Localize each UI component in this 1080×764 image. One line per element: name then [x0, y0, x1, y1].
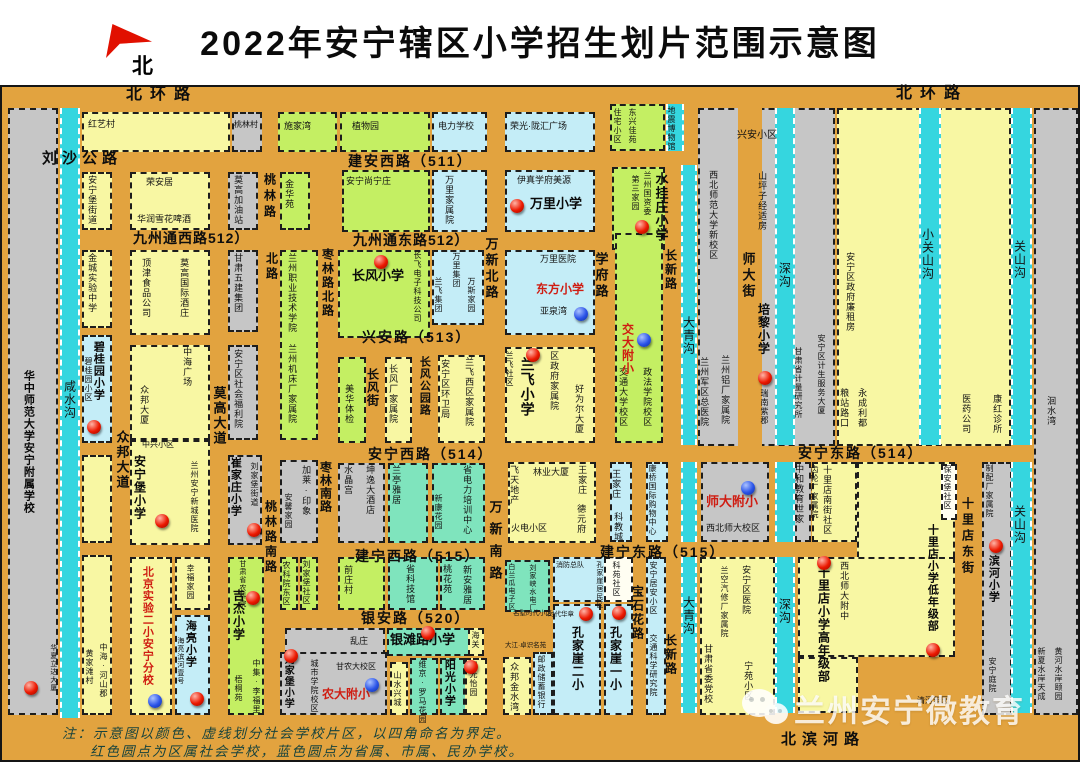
area-label: 黄河水岸颐园 — [1053, 647, 1062, 701]
red-school-dot — [190, 692, 204, 706]
area-label: 制配厂家属院 — [984, 464, 993, 518]
map-canvas: 2022年安宁辖区小学招生划片范围示意图 北 北环路北环路刘沙公路建安西路（51… — [0, 0, 1080, 764]
area-label: 粮站路口 — [839, 388, 849, 428]
area-label: 兰州国资委 — [642, 171, 651, 216]
red-school-dot — [87, 420, 101, 434]
area-label: 甘肃省委党校 — [703, 644, 713, 704]
school-label: 华中师范大学安宁附属学校 — [22, 370, 34, 514]
area-label: 乱庄 — [350, 636, 368, 646]
school-label: 兰飞小学 — [518, 357, 534, 417]
area-label: 德元府 — [576, 504, 586, 534]
area-label: 万斯家园 — [466, 277, 475, 313]
area-label: 安宁区环卫局 — [440, 359, 450, 419]
red-school-dot — [246, 591, 260, 605]
school-label: 十里店小学高年级部 — [816, 566, 829, 683]
watermark: 兰州安宁微教育 — [742, 686, 1025, 731]
road-label: 学府路 — [593, 252, 608, 300]
area-label: 电力学校 — [438, 121, 474, 131]
area-label: 桃花苑 — [442, 564, 452, 594]
area-label: 住宅小区 — [612, 108, 621, 144]
school-label: 农大附小 — [322, 688, 370, 701]
area-label: 顶津食品公司 — [141, 258, 151, 318]
area-label: 兰飞西区家属院 — [464, 357, 474, 427]
area-label: 消防总队 — [556, 562, 584, 570]
red-school-dot — [284, 649, 298, 663]
area-label: 洄水湾 — [1046, 396, 1056, 426]
map-block — [280, 250, 318, 440]
area-label: 瑞南紫郡 — [759, 389, 768, 425]
area-label: 碧桂园小区 — [83, 357, 92, 402]
waterway — [681, 165, 697, 445]
blue-school-dot — [741, 481, 755, 495]
road-label: 长风街 — [365, 368, 378, 407]
area-label: 西北师大校区 — [706, 523, 760, 533]
waterway-label: 关山沟 — [1012, 240, 1025, 279]
legend-note-line1: 注：示意图以颜色、虚线划分社会学校片区，以四角命名为界定。 — [62, 722, 512, 742]
red-school-dot — [612, 606, 626, 620]
waterway-label: 地震博物馆 — [666, 106, 675, 151]
area-label: 海关 — [470, 631, 479, 649]
map-block — [82, 455, 112, 543]
waterway — [681, 462, 697, 542]
area-label: 安宁区医院 — [741, 565, 751, 615]
waterway-label: 深沟 — [777, 598, 790, 624]
area-label: 长风厂家属院 — [388, 364, 398, 424]
road-label: 刘沙公路 — [42, 151, 122, 168]
area-label: 科苑社区 — [611, 561, 620, 597]
road-label: 九州通东路512） — [353, 233, 469, 249]
school-label: 安宁堡小学 — [132, 455, 145, 520]
page-title: 2022年安宁辖区小学招生划片范围示意图 — [0, 16, 1080, 65]
area-label: 时代华章 — [548, 611, 574, 618]
school-label: 师大附小 — [706, 496, 758, 511]
area-label: 邮政储蓄银行 — [536, 655, 545, 709]
red-school-dot — [247, 523, 261, 537]
area-label: 荣安居 — [146, 177, 173, 187]
area-label: 东兴佳苑 — [627, 108, 636, 144]
area-label: 幸福家园 — [185, 564, 194, 600]
area-label: 兰州职业技术学院 — [287, 253, 297, 333]
blue-school-dot — [148, 694, 162, 708]
area-label: 科教城 — [613, 512, 623, 542]
school-label: 长风小学 — [352, 270, 404, 285]
blue-school-dot — [365, 678, 379, 692]
area-label: 加莱·印象 — [301, 465, 311, 516]
area-label: 西北师大附中 — [839, 561, 849, 621]
road-label: 九州通西路512） — [133, 231, 249, 247]
area-label: 交通科学研究院 — [648, 634, 657, 697]
area-label: 兰飞社区 — [504, 351, 513, 387]
area-label: 刘家堡社区 — [301, 560, 310, 605]
area-label: 安馨家园 — [283, 493, 292, 529]
area-label: 植物园 — [352, 121, 379, 131]
red-school-dot — [526, 348, 540, 362]
legend-note-line2: 红色圆点为区属社会学校，蓝色圆点为省属、市属、民办学校。 — [90, 740, 524, 760]
road-label: 十里店东街 — [960, 497, 973, 577]
area-label: 永成利都 — [857, 388, 867, 428]
area-label: 万里家属院 — [444, 175, 454, 225]
area-label: 甘肃五建集团 — [233, 253, 243, 313]
waterway — [775, 462, 795, 542]
waterway-label: 深沟 — [777, 262, 790, 288]
area-label: 万里医院 — [540, 254, 576, 264]
road-label: 师大街 — [740, 252, 755, 300]
area-label: 刘家峡水电厂 — [528, 564, 536, 612]
area-label: 众邦大厦 — [139, 385, 149, 425]
area-label: 安宁堡街道 — [87, 175, 97, 225]
waterway-label: 咸水沟 — [62, 380, 75, 419]
road-label: 安宁东路（514） — [798, 446, 923, 462]
area-label: 城市学院校区 — [309, 659, 318, 713]
north-label: 北 — [132, 50, 153, 80]
school-label: 吉杰小学 — [231, 589, 244, 641]
area-label: 新安雅居 — [462, 565, 472, 605]
area-label: 第三家园 — [630, 175, 639, 211]
red-school-dot — [579, 607, 593, 621]
area-label: 白兰瓜电子区 — [507, 563, 515, 611]
area-label: 林业大厦 — [533, 467, 569, 477]
area-label: 华夏立达大厦 — [49, 644, 57, 692]
area-label: 兴安小区 — [737, 130, 777, 141]
area-label: 新夏水岸天成 — [1036, 647, 1045, 701]
area-label: 山坪子经适房 — [757, 171, 767, 231]
area-label: 兰亭雅居 — [391, 465, 401, 505]
red-school-dot — [926, 643, 940, 657]
red-school-dot — [817, 556, 831, 570]
road-label: 北环路 — [126, 86, 198, 104]
area-label: 王家庄 — [577, 465, 587, 495]
waterway-label: 大青沟 — [681, 596, 694, 635]
road-label: 枣林南路 — [318, 461, 331, 513]
school-label: 碧桂园小学 — [92, 341, 104, 401]
area-label: 安宁尚宁庄 — [346, 176, 391, 186]
area-label: 海亮滨河壹号 — [176, 637, 184, 685]
area-label: 甘农大校区 — [336, 663, 376, 672]
area-label: 政法学院校区 — [642, 367, 652, 427]
waterway-label: 小关山沟 — [920, 228, 933, 280]
area-label: 甘肃省计量研究所 — [793, 347, 802, 419]
area-label: 省科技馆 — [405, 564, 415, 604]
area-label: 农科院东区 — [281, 561, 290, 606]
area-label: 华润雪花啤酒 — [137, 214, 191, 224]
area-label: 莫高加油站 — [233, 175, 243, 225]
area-label: 刘家堡街道 — [249, 462, 258, 507]
area-label: 安宁区政府廉租房 — [845, 252, 855, 332]
area-label: 名墅时代小区 — [513, 610, 552, 617]
area-label: 省电力培训中心 — [462, 465, 472, 535]
area-label: 好为尔大厦 — [574, 384, 584, 434]
map-block — [340, 112, 430, 152]
area-label: 伊真学府美源 — [517, 175, 571, 185]
school-label: 阳光小学 — [443, 659, 455, 707]
road-label: 万新南路 — [487, 500, 502, 588]
area-label: 水晶宫 — [343, 465, 353, 495]
road-label: 枣林路北路 — [320, 248, 333, 318]
area-label: 康桥国际购物中心 — [647, 464, 656, 536]
map-block — [505, 112, 595, 152]
area-label: 中兴小区 — [142, 441, 174, 450]
road-label: 建宁西路（515） — [355, 549, 480, 565]
school-label: 交大附小 — [620, 323, 633, 375]
area-label: 新康花园 — [433, 494, 442, 530]
map-block — [432, 170, 487, 232]
road-label: 长风公园路 — [418, 356, 430, 416]
area-label: 兰州铝厂家属院 — [720, 355, 730, 425]
area-label: 施家湾 — [284, 121, 311, 131]
area-label: 中和教育世家 — [794, 464, 804, 524]
area-label: 兰飞集团 — [433, 277, 442, 313]
watermark-text: 兰州安宁微教育 — [794, 686, 1025, 731]
red-school-dot — [510, 199, 524, 213]
road-label: 桃林路南路 — [263, 500, 276, 575]
wechat-icon — [742, 689, 788, 729]
area-label: 飞天地产 — [509, 465, 519, 505]
road-label: 北环路 — [896, 85, 968, 103]
school-label: 东方小学 — [536, 283, 584, 296]
area-label: 安宁区社会福利院 — [233, 349, 243, 429]
area-label: 大江·卓识名苑 — [505, 642, 546, 649]
area-label: 荣光·陇汇广场 — [510, 121, 567, 131]
area-label: 医药公司 — [961, 394, 971, 434]
school-label: 崔家庄小学 — [229, 457, 241, 517]
area-label: 金华苑 — [284, 179, 294, 209]
map-block — [278, 112, 337, 152]
area-label: 保安堡社区 — [942, 465, 951, 510]
area-label: 火电小区 — [511, 523, 547, 533]
area-label: 齿轮厂家属院 — [809, 465, 818, 519]
area-label: 交通大学校区 — [618, 367, 628, 427]
waterway — [681, 557, 697, 713]
area-label: 万里集团 — [451, 252, 460, 288]
area-label: 中集·李福里 — [251, 659, 260, 714]
road-label: 众邦大道 — [114, 430, 129, 490]
red-school-dot — [421, 626, 435, 640]
road-label: 长新路 — [663, 634, 676, 676]
school-label: 孔家崖一小 — [608, 626, 621, 691]
area-label: 长飞电子科技公司 — [412, 251, 421, 323]
area-label: 山水兴城 — [392, 671, 401, 707]
area-label: 坤逸大酒店 — [365, 465, 375, 515]
red-school-dot — [374, 255, 388, 269]
waterway-label: 关山沟 — [1012, 505, 1025, 544]
road-label: 北滨河路 — [781, 732, 865, 749]
school-label: 培黎小学 — [756, 303, 769, 355]
road-label: 北路 — [264, 252, 277, 282]
area-label: 兰空汽修厂家属院 — [719, 566, 728, 638]
area-label: 区政府家属院 — [549, 351, 559, 411]
waterway — [1011, 462, 1032, 713]
road-label: 银安路（520） — [361, 611, 470, 627]
area-label: 金城实验中学 — [87, 253, 97, 313]
area-label: 康红诊所 — [992, 394, 1002, 434]
road-label: 长新路 — [663, 249, 676, 291]
area-label: 黄家滩村 — [84, 649, 93, 685]
school-label: 海亮小学 — [184, 620, 196, 668]
road-label: 宝石花路 — [630, 585, 643, 641]
area-label: 中海·河山郡 — [98, 643, 107, 698]
blue-school-dot — [637, 333, 651, 347]
map-block — [432, 112, 487, 152]
area-label: 安宁区计生服务大厦 — [816, 334, 825, 415]
area-label: 亚泉湾 — [540, 306, 567, 316]
area-label: 兰州安宁新城医院 — [189, 461, 198, 533]
area-label: 桃林村 — [234, 121, 258, 130]
road-label: 万新北路 — [483, 237, 498, 301]
map-block — [82, 112, 230, 152]
area-label: 美华体检 — [344, 384, 354, 424]
road-label: 桃林路 — [262, 173, 275, 221]
area-label: 莫高国际酒庄 — [179, 258, 189, 318]
map-block — [232, 112, 262, 152]
area-label: 兰州机床厂家属院 — [287, 344, 297, 424]
red-school-dot — [989, 539, 1003, 553]
area-label: 十里店南街社区 — [822, 465, 832, 535]
area-label: 安宁居安小区 — [648, 561, 657, 615]
red-school-dot — [635, 220, 649, 234]
red-school-dot — [155, 514, 169, 528]
road-label: 莫高大道 — [211, 386, 226, 446]
school-label: 水挂庄小学 — [652, 172, 667, 242]
area-label: 前庄村 — [343, 565, 353, 595]
area-label: 兰州军区总医院 — [699, 357, 709, 427]
road-label: 建宁东路（515） — [600, 545, 725, 561]
school-label: 滨河小学 — [987, 555, 999, 603]
area-label: 中海广场 — [182, 347, 192, 387]
school-label: 孔家崖二小 — [570, 626, 583, 691]
area-label: 王家庄 — [611, 469, 621, 499]
area-label: 红艺村 — [88, 119, 115, 129]
school-label: 万里小学 — [530, 198, 582, 213]
road-label: 安宁西路（514） — [368, 447, 493, 463]
red-school-dot — [464, 660, 478, 674]
road-label: 兴安路（513） — [362, 330, 471, 346]
area-label: 众邦金水湾 — [509, 662, 519, 712]
red-school-dot — [758, 371, 772, 385]
school-label: 北京实验二小安宁分校 — [141, 566, 153, 686]
school-label: 十里店小学低年级部 — [926, 524, 938, 632]
blue-school-dot — [574, 307, 588, 321]
road-label: 建安西路（511） — [348, 154, 473, 170]
area-label: 维京·罗马花园 — [417, 660, 426, 724]
red-school-dot — [24, 681, 38, 695]
area-label: 孔家崖居民区 — [595, 561, 603, 609]
area-label: 西北师范大学新校区 — [708, 170, 718, 260]
area-label: 梧桐苑 — [233, 675, 242, 702]
waterway-label: 大青沟 — [681, 316, 694, 355]
